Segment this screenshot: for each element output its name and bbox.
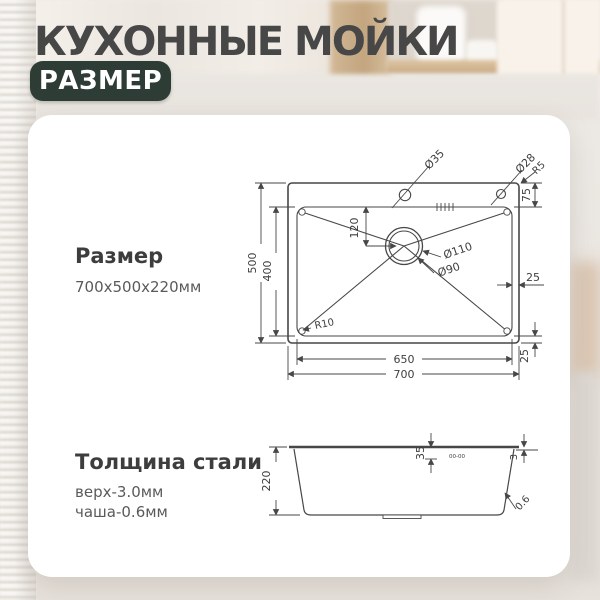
dim-drain-outer: Ø110 [442, 240, 474, 262]
dim-faucet-hole: Ø35 [422, 147, 447, 172]
dim-bowl-depth: 400 [261, 261, 274, 282]
dim-bowl-radius: R10 [314, 317, 336, 332]
dim-rim-top: 75 [520, 188, 533, 202]
poster: КУХОННЫЕ МОЙКИ РАЗМЕР Размер 700x500x220… [0, 0, 600, 600]
dim-drain-inner: Ø90 [436, 260, 462, 280]
dim-bowl-width: 650 [394, 353, 415, 366]
drain-boss [383, 515, 421, 519]
dim-overall-depth: 500 [246, 253, 259, 274]
side-view [262, 433, 538, 519]
top-view [248, 166, 544, 381]
dim-height: 220 [260, 471, 273, 492]
technical-drawing: 650 700 500 400 75 25 25 120 Ø110 Ø90 Ø3… [0, 0, 600, 600]
dim-rim-height: 35 [414, 446, 427, 460]
stamp-marks: 00-00 [449, 454, 465, 460]
dim-drain-offset: 120 [348, 218, 361, 239]
sink-bowl-profile [294, 449, 514, 515]
dim-rim-right: 25 [526, 271, 540, 284]
dim-wall-thickness: 0.6 [514, 494, 533, 513]
sink-bowl-edge [297, 207, 512, 336]
dimensions [255, 172, 544, 380]
faucet-hole [399, 189, 410, 200]
dim-overall-width: 700 [394, 368, 415, 381]
dim-top-thickness: 3 [509, 454, 520, 460]
dim-rim-bottom: 25 [518, 349, 531, 363]
